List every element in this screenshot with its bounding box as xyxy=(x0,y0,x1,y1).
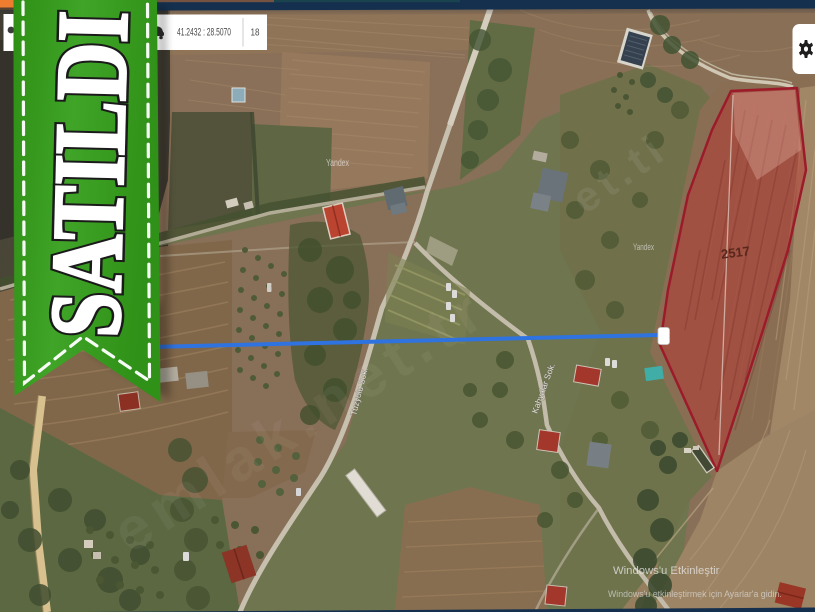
svg-text:41.2432 : 28.5070: 41.2432 : 28.5070 xyxy=(177,27,231,39)
svg-text:Windows'u Etkinleştir: Windows'u Etkinleştir xyxy=(613,565,720,577)
svg-text:18: 18 xyxy=(251,27,260,39)
svg-text:SATILDI: SATILDI xyxy=(30,10,149,339)
svg-text:Windows'u etkinleştirmek için: Windows'u etkinleştirmek için Ayarlar'a … xyxy=(608,589,782,599)
